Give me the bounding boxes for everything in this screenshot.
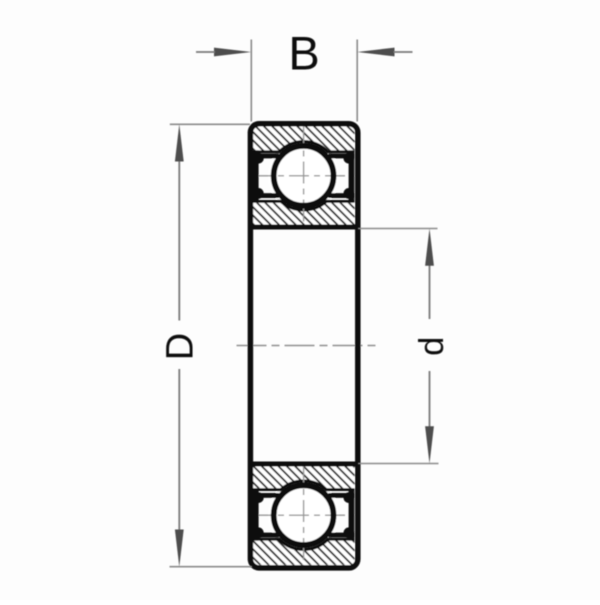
svg-text:D: D: [160, 333, 202, 360]
svg-text:B: B: [288, 27, 319, 80]
svg-text:d: d: [413, 337, 451, 356]
